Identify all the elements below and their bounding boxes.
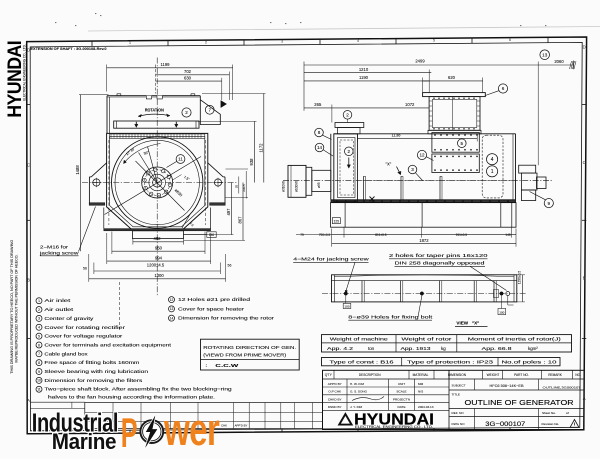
svg-text:kg: kg	[441, 346, 446, 351]
svg-text:1872: 1872	[419, 238, 429, 243]
svg-text:5: 5	[38, 334, 40, 338]
svg-text:C: C	[27, 163, 30, 168]
svg-text:12 Holes ø21 pre drilled: 12 Holes ø21 pre drilled	[178, 297, 251, 302]
svg-text:497: 497	[226, 208, 231, 216]
svg-text:HFC6 506−14K−EB: HFC6 506−14K−EB	[490, 384, 524, 388]
svg-text:145: 145	[505, 233, 511, 237]
svg-text:2004.03.13: 2004.03.13	[418, 405, 434, 409]
svg-text:Dimension for removing the fil: Dimension for removing the filters	[44, 378, 143, 383]
svg-text:1: 1	[491, 169, 494, 175]
svg-text:REMARK: REMARK	[548, 373, 563, 377]
svg-text:CHKD BY: CHKD BY	[328, 397, 342, 401]
svg-text:Cover for terminals and excita: Cover for terminals and excitation equip…	[44, 342, 172, 347]
svg-text:230.5: 230.5	[242, 184, 246, 192]
svg-text:2 holes for taper pins 16x120: 2 holes for taper pins 16x120	[389, 253, 488, 258]
svg-text:Air inlet: Air inlet	[44, 298, 71, 303]
svg-text:Weight of rotor: Weight of rotor	[401, 337, 452, 342]
svg-text:7: 7	[38, 352, 40, 356]
svg-text:wer: wer	[163, 405, 219, 455]
svg-text:702: 702	[184, 69, 192, 74]
svg-text:2060: 2060	[554, 59, 564, 64]
svg-text:Cover for voltage regulator: Cover for voltage regulator	[44, 334, 122, 339]
svg-text:3: 3	[281, 40, 283, 44]
svg-text:B: B	[27, 278, 30, 283]
svg-text:265: 265	[314, 102, 322, 107]
svg-text:9: 9	[38, 370, 40, 374]
svg-text:DWG NO: DWG NO	[452, 422, 466, 426]
svg-text:2−M16 for: 2−M16 for	[40, 244, 69, 249]
svg-text:halves to the fan housing acco: halves to the fan housing according the …	[48, 395, 215, 400]
svg-text:140: 140	[209, 233, 215, 237]
svg-text:ton: ton	[368, 346, 375, 351]
svg-text:25: 25	[235, 185, 239, 189]
svg-text:6: 6	[509, 38, 511, 42]
svg-text:N/S: N/S	[418, 390, 423, 394]
svg-text:14: 14	[170, 316, 174, 320]
svg-text:ROTATING DIRECTION OF GEN.: ROTATING DIRECTION OF GEN.	[203, 345, 296, 350]
svg-text:NO.: NO.	[575, 373, 581, 377]
svg-text:UNIT: UNIT	[398, 382, 405, 386]
svg-text:620: 620	[448, 75, 456, 80]
svg-text:5: 5	[461, 141, 464, 146]
svg-text:O.P CHK: O.P CHK	[328, 390, 342, 394]
svg-text:SUBJECT: SUBJECT	[452, 384, 466, 388]
svg-text:2: 2	[205, 40, 207, 44]
svg-text:Q'TY: Q'TY	[325, 373, 333, 377]
svg-text:EXTENSION OF SHAFT : 3G-000108: EXTENSION OF SHAFT : 3G-000108-Rev.0	[31, 47, 107, 51]
svg-text:6: 6	[502, 86, 505, 91]
svg-text:Center of gravity: Center of gravity	[44, 316, 94, 321]
svg-text:6: 6	[38, 343, 40, 347]
svg-text:ELECTRICAL ENGINEERING CO., LT: ELECTRICAL ENGINEERING CO., LTD.	[355, 425, 433, 429]
svg-text:7: 7	[208, 107, 211, 112]
svg-text:1190: 1190	[359, 75, 369, 80]
svg-text:4: 4	[38, 326, 40, 330]
svg-text:2: 2	[38, 308, 40, 312]
svg-text:10: 10	[37, 379, 41, 383]
svg-text:C: C	[583, 160, 586, 165]
svg-text:of: of	[566, 411, 569, 415]
svg-text:100: 100	[499, 310, 504, 314]
svg-text:Air outlet: Air outlet	[44, 307, 74, 312]
svg-text:7.5°: 7.5°	[183, 175, 191, 182]
svg-text:12: 12	[419, 153, 425, 158]
svg-text:PART NO.: PART NO.	[514, 373, 529, 377]
svg-text:1300: 1300	[154, 273, 164, 278]
svg-text:OUTLINE,3G000107: OUTLINE,3G000107	[543, 385, 582, 389]
svg-text:Cover for space heater: Cover for space heater	[178, 306, 245, 311]
svg-text:ROTATION: ROTATION	[145, 108, 164, 113]
svg-text:56: 56	[228, 263, 232, 267]
svg-text:4: 4	[357, 39, 359, 43]
svg-text:13: 13	[542, 52, 548, 57]
svg-text:Two−piece shaft block. After a: Two−piece shaft block. After assembling …	[44, 387, 232, 392]
svg-text:56: 56	[83, 266, 87, 270]
svg-text:1488: 1488	[75, 165, 80, 175]
svg-text:kgm²: kgm²	[528, 346, 538, 351]
svg-text:1199: 1199	[160, 62, 170, 67]
svg-text:2: 2	[348, 149, 351, 154]
svg-text:1172: 1172	[258, 143, 263, 153]
svg-text:D: D	[27, 48, 30, 53]
svg-text:1: 1	[129, 41, 131, 45]
svg-text:3: 3	[38, 317, 40, 321]
svg-text:8: 8	[38, 361, 40, 365]
svg-text:G. S. SONG: G. S. SONG	[350, 390, 368, 394]
svg-text:WEIGHT: WEIGHT	[487, 373, 500, 377]
svg-text:2499: 2499	[415, 58, 425, 63]
svg-text:938: 938	[249, 158, 254, 166]
svg-text:867: 867	[238, 216, 243, 224]
svg-text:911±0.5: 911±0.5	[456, 233, 467, 237]
svg-text:jacking screw: jacking screw	[39, 251, 80, 256]
svg-text:No.of poles : 10: No.of poles : 10	[502, 360, 558, 365]
svg-text:ø630: ø630	[174, 188, 184, 198]
svg-text:Marine: Marine	[52, 429, 117, 454]
svg-text:Dimension for removing the rot: Dimension for removing the rotor	[178, 316, 275, 321]
svg-text:11: 11	[178, 157, 183, 162]
svg-text:2: 2	[185, 110, 188, 115]
svg-text:CHK: CHK	[221, 423, 227, 427]
svg-text:A: A	[27, 398, 30, 403]
svg-text:D: D	[583, 45, 586, 50]
svg-text:DIN 258 diagonally opposed: DIN 258 diagonally opposed	[395, 261, 486, 266]
svg-text:Weight of machine: Weight of machine	[330, 337, 389, 342]
svg-text:994: 994	[155, 255, 163, 260]
svg-text:J. Y. KIM: J. Y. KIM	[350, 405, 363, 409]
svg-text:APP'D BY: APP'D BY	[328, 382, 342, 386]
svg-text:12: 12	[170, 298, 174, 302]
svg-text:"X": "X"	[472, 321, 479, 326]
svg-text:9: 9	[548, 201, 551, 206]
svg-text:MAYBE REPRODUCED WITHOUT THE P: MAYBE REPRODUCED WITHOUT THE PERMISSION …	[14, 255, 19, 363]
svg-text:OUTLINE OF GENERATOR: OUTLINE OF GENERATOR	[465, 398, 575, 407]
svg-text:"X": "X"	[386, 162, 392, 167]
svg-text:ø95: ø95	[317, 182, 321, 188]
svg-text:100: 100	[344, 305, 349, 309]
svg-text:1138: 1138	[391, 133, 401, 138]
svg-text:Revision No.: Revision No.	[542, 422, 560, 426]
svg-text:Moment of inertia of rotor(J): Moment of inertia of rotor(J)	[468, 337, 562, 342]
svg-text:Sheet No.: Sheet No.	[542, 411, 556, 415]
svg-text:VIEW: VIEW	[456, 321, 468, 326]
svg-text:Sleeve bearing with ring lubri: Sleeve bearing with ring lubrication	[44, 369, 148, 374]
svg-text:2: 2	[346, 112, 349, 117]
svg-text:1210: 1210	[359, 67, 369, 72]
svg-text:1: 1	[38, 299, 40, 303]
svg-text:630: 630	[184, 75, 192, 80]
svg-text:3: 3	[411, 167, 414, 172]
svg-text::: :	[206, 364, 208, 369]
svg-text:3G−000107: 3G−000107	[485, 421, 525, 428]
svg-text:H. W. KIM: H. W. KIM	[350, 382, 364, 386]
svg-text:App. 1913: App. 1913	[401, 346, 432, 351]
svg-text:Cover for rotating rectifier: Cover for rotating rectifier	[44, 325, 125, 330]
svg-text:HYUNDAI: HYUNDAI	[3, 41, 25, 118]
svg-text:APP'D BY: APP'D BY	[235, 423, 248, 427]
svg-text:1290±0.5: 1290±0.5	[518, 271, 522, 284]
svg-text:125: 125	[334, 219, 340, 223]
svg-text:4: 4	[491, 157, 494, 163]
svg-text:8−ø39 Holes for fixing bolt: 8−ø39 Holes for fixing bolt	[348, 315, 433, 320]
svg-text:482: 482	[154, 236, 162, 241]
svg-text:MATERIAL: MATERIAL	[413, 373, 429, 377]
svg-text:PROJECT'N: PROJECT'N	[393, 397, 410, 401]
svg-text:13: 13	[170, 307, 174, 311]
svg-text:DIMENSION: DIMENSION	[448, 373, 467, 377]
svg-text:SCALE: SCALE	[396, 390, 406, 394]
svg-text:REF. NO: REF. NO	[452, 411, 465, 415]
svg-text:(VIEWD FROM PRIME MOVER): (VIEWD FROM PRIME MOVER)	[203, 352, 287, 357]
svg-text:1072: 1072	[405, 102, 415, 107]
svg-text:950: 950	[155, 245, 163, 250]
svg-text:811±0.5: 811±0.5	[375, 233, 386, 237]
svg-text:5: 5	[433, 38, 435, 42]
svg-text:C.C.W: C.C.W	[215, 363, 239, 369]
svg-text:P: P	[121, 411, 138, 457]
svg-text:11: 11	[37, 388, 41, 392]
svg-text:ø100h6: ø100h6	[295, 181, 299, 192]
svg-text:4−M24 for jacking screw: 4−M24 for jacking screw	[293, 257, 370, 262]
svg-text:App. 4.2: App. 4.2	[327, 346, 354, 351]
svg-text:DESCRIPTION: DESCRIPTION	[359, 373, 381, 377]
svg-text:8: 8	[318, 130, 321, 135]
svg-text:DSND BY: DSND BY	[328, 405, 342, 409]
svg-text:ELECTRICAL ENGINEERING CO., LT: ELECTRICAL ENGINEERING CO., LTD.	[22, 44, 26, 101]
svg-text:Type of const : B16: Type of const : B16	[330, 360, 395, 365]
svg-text:14: 14	[317, 145, 323, 150]
svg-text:App. 66.8: App. 66.8	[482, 346, 513, 351]
svg-text:Cable gland box: Cable gland box	[44, 351, 88, 356]
svg-text:TITLE: TITLE	[452, 392, 460, 396]
svg-text:1200±4.5: 1200±4.5	[147, 262, 165, 267]
svg-text:Free space of fitting bolts 16: Free space of fitting bolts 160mm	[44, 360, 139, 365]
svg-text:Type of protection : IP23: Type of protection : IP23	[407, 360, 494, 365]
svg-text:B: B	[583, 276, 586, 281]
svg-text:ø310h6: ø310h6	[282, 181, 286, 192]
svg-text:DATE: DATE	[397, 405, 405, 409]
svg-text:MM: MM	[418, 382, 424, 386]
